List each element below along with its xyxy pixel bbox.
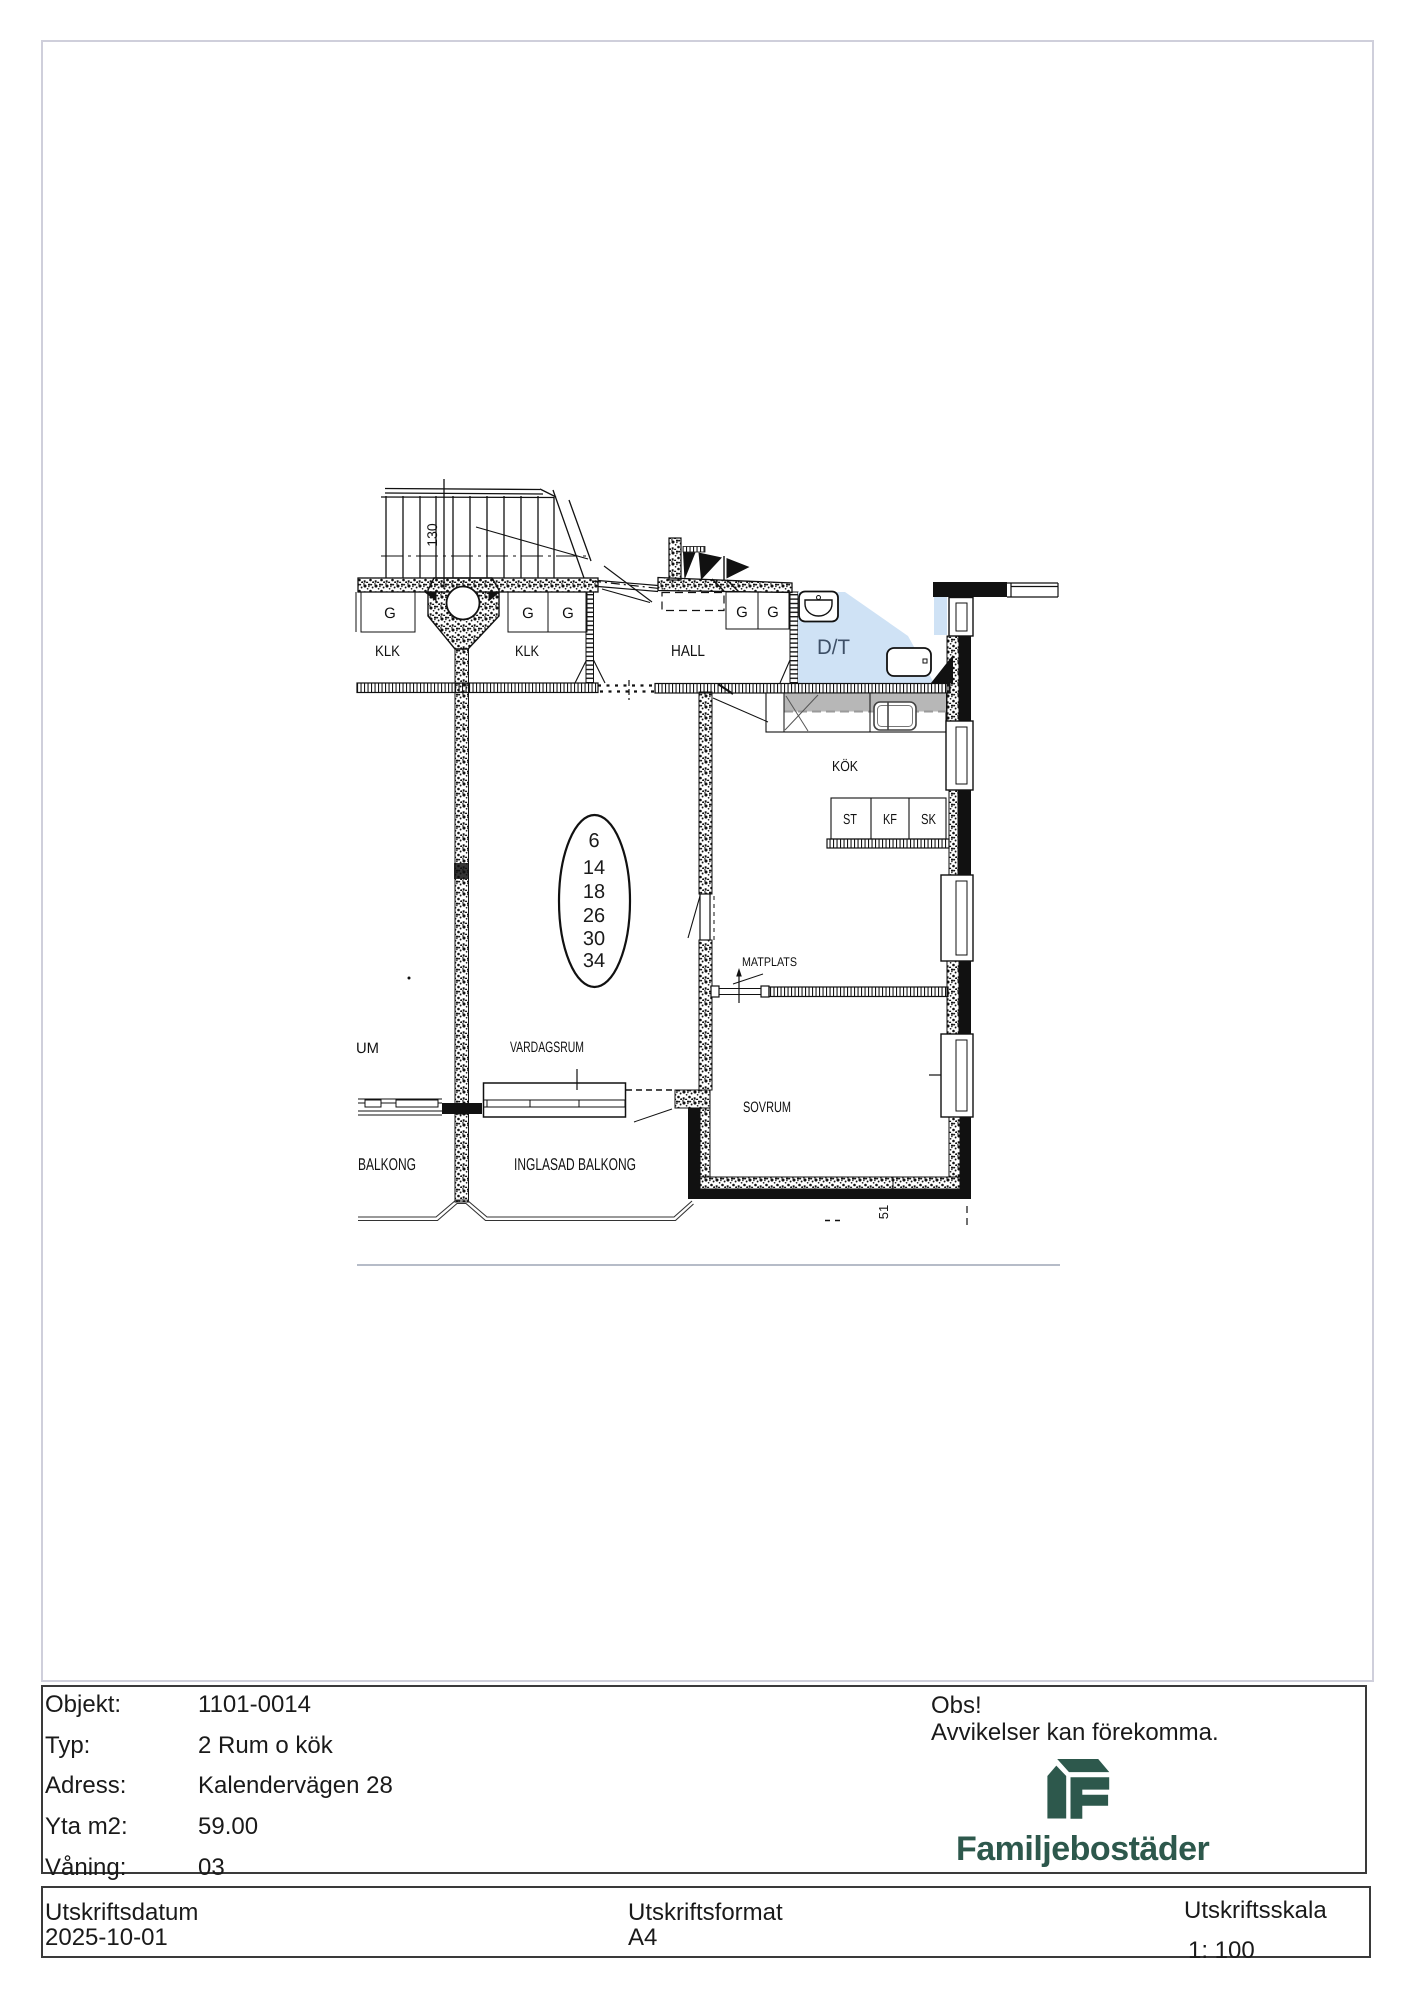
- svg-text:6: 6: [588, 830, 599, 852]
- svg-text:34: 34: [583, 950, 605, 972]
- svg-text:14: 14: [583, 857, 605, 879]
- svg-text:51: 51: [876, 1205, 891, 1219]
- svg-text:G: G: [522, 605, 534, 622]
- svg-text:BALKONG: BALKONG: [358, 1155, 416, 1174]
- svg-text:KLK: KLK: [515, 643, 539, 660]
- svg-text:SOVRUM: SOVRUM: [743, 1099, 791, 1116]
- svg-text:KÖK: KÖK: [832, 758, 858, 775]
- svg-text:KLK: KLK: [375, 643, 400, 660]
- svg-text:30: 30: [583, 928, 605, 950]
- svg-text:SK: SK: [921, 812, 936, 828]
- svg-text:G: G: [562, 605, 574, 622]
- svg-text:HALL: HALL: [671, 643, 705, 660]
- svg-text:G: G: [767, 604, 779, 621]
- svg-text:G: G: [736, 604, 748, 621]
- svg-text:UM: UM: [356, 1040, 379, 1057]
- svg-text:MATPLATS: MATPLATS: [742, 955, 797, 969]
- svg-text:ST: ST: [843, 812, 857, 828]
- svg-text:INGLASAD BALKONG: INGLASAD BALKONG: [514, 1155, 636, 1174]
- svg-text:130: 130: [424, 523, 440, 547]
- svg-text:G: G: [384, 605, 396, 622]
- svg-text:18: 18: [583, 881, 605, 903]
- svg-text:VARDAGSRUM: VARDAGSRUM: [510, 1039, 584, 1056]
- svg-text:D/T: D/T: [817, 636, 850, 659]
- svg-text:26: 26: [583, 905, 605, 927]
- svg-text:KF: KF: [883, 812, 897, 828]
